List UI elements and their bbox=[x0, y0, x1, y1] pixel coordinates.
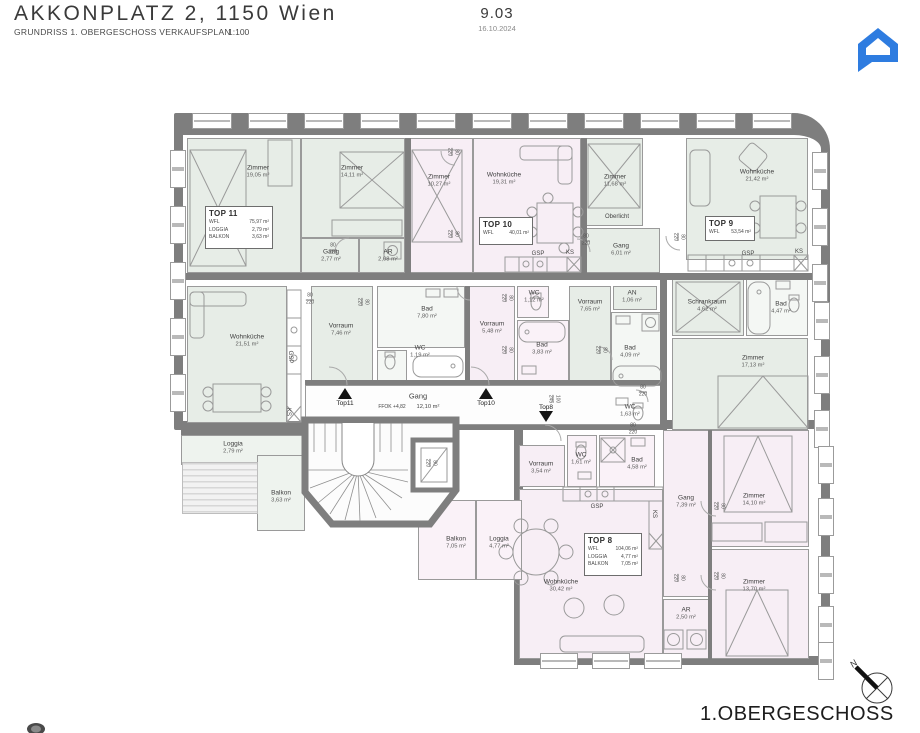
plan-annotation: KS bbox=[651, 510, 657, 518]
room-label: Zimmer14,10 m² bbox=[743, 493, 766, 508]
floor-label: 1.OBERGESCHOSS bbox=[700, 703, 880, 726]
unit-id: TOP 10 bbox=[483, 220, 529, 229]
door-dimension-label: 80220 bbox=[446, 230, 459, 238]
window bbox=[812, 264, 828, 302]
window bbox=[814, 302, 830, 340]
door-dimension-label: 80220 bbox=[306, 294, 314, 307]
wall bbox=[183, 273, 822, 280]
room-label: WC1,19 m² bbox=[410, 345, 430, 360]
plan-subtitle: GRUNDRISS 1. OBERGESCHOSS VERKAUFSPLAN bbox=[14, 27, 231, 37]
window bbox=[592, 653, 630, 669]
plan-annotation: GSP bbox=[742, 251, 755, 257]
room-label: AR2,08 m² bbox=[378, 249, 398, 264]
room-label: Loggia4,77 m² bbox=[489, 536, 509, 551]
room-label: WC1,61 m² bbox=[571, 452, 591, 467]
window bbox=[814, 356, 830, 394]
room bbox=[301, 138, 405, 238]
door-dimension-label: 80220 bbox=[582, 235, 590, 248]
window bbox=[170, 206, 186, 244]
unit-info-box: TOP 9WFL53,54 m² bbox=[705, 216, 755, 241]
wall bbox=[581, 138, 587, 273]
door-dimension-label: 100245 bbox=[547, 395, 560, 403]
plan-number: 9.03 bbox=[452, 5, 542, 22]
entrance-marker: Top11 bbox=[331, 388, 359, 407]
room-label: Zimmer14,11 m² bbox=[341, 165, 363, 180]
window bbox=[640, 113, 680, 129]
window bbox=[360, 113, 400, 129]
room bbox=[663, 430, 709, 597]
plan-annotation: GSP bbox=[287, 351, 293, 364]
wall bbox=[660, 280, 667, 430]
room-label: Zimmer19,05 m² bbox=[247, 165, 270, 180]
door-dimension-label: 80220 bbox=[639, 386, 647, 399]
entrance-marker: Top10 bbox=[472, 388, 500, 407]
room-label: Bad4,47 m² bbox=[771, 301, 791, 316]
plan-annotation: KS bbox=[285, 408, 291, 416]
plan-annotation: 12,10 m² bbox=[417, 404, 440, 410]
room-label: Bad4,58 m² bbox=[627, 457, 647, 472]
plan-annotation: KS bbox=[795, 249, 803, 255]
window bbox=[304, 113, 344, 129]
room-label: Loggia2,79 m² bbox=[223, 441, 243, 456]
plan-date: 16.10.2024 bbox=[452, 24, 542, 33]
door-dimension-label: 80220 bbox=[446, 148, 459, 156]
room-label: Vorraum7,65 m² bbox=[578, 299, 603, 314]
room bbox=[473, 138, 581, 273]
window bbox=[248, 113, 288, 129]
plan-annotation: Gang bbox=[409, 392, 427, 401]
room bbox=[686, 138, 808, 260]
window bbox=[644, 653, 682, 669]
room-label: Gang7,39 m² bbox=[676, 495, 696, 510]
door-dimension-label: 80220 bbox=[329, 244, 337, 257]
door-dimension-label: 80220 bbox=[594, 346, 607, 354]
room-label: Schrankraum4,62 m² bbox=[688, 299, 727, 314]
window bbox=[818, 446, 834, 484]
terrace-hatch bbox=[182, 462, 258, 514]
unit-id: TOP 11 bbox=[209, 209, 269, 218]
room-label: Bad7,80 m² bbox=[417, 306, 437, 321]
room-label: Balkon7,05 m² bbox=[446, 536, 466, 551]
window bbox=[540, 653, 578, 669]
floorplan-sheet: AKKONPLATZ 2, 1150 Wien GRUNDRISS 1. OBE… bbox=[0, 0, 920, 733]
window bbox=[752, 113, 792, 129]
wall bbox=[465, 286, 470, 383]
window bbox=[170, 374, 186, 412]
wall bbox=[405, 138, 411, 273]
room-label: Wohnküche21,42 m² bbox=[740, 169, 774, 184]
wall bbox=[708, 430, 712, 659]
plan-scale: 1:100 bbox=[228, 27, 249, 37]
wall bbox=[181, 423, 307, 435]
door-dimension-label: 80220 bbox=[500, 294, 513, 302]
window bbox=[170, 262, 186, 300]
room-label: AN1,06 m² bbox=[622, 290, 642, 305]
room-label: Bad3,83 m² bbox=[532, 342, 552, 357]
door-dimension-label: 80220 bbox=[712, 572, 725, 580]
door-dimension-label: 80220 bbox=[672, 574, 685, 582]
wall bbox=[305, 380, 661, 385]
unit-id: TOP 9 bbox=[709, 219, 751, 228]
unit-info-box: TOP 8WFL104,06 m²LOGGIA4,77 m²BALKON7,05… bbox=[584, 533, 642, 576]
window bbox=[812, 152, 828, 190]
window bbox=[170, 318, 186, 356]
room bbox=[672, 338, 808, 430]
page-title: AKKONPLATZ 2, 1150 Wien bbox=[14, 2, 337, 26]
window bbox=[416, 113, 456, 129]
window bbox=[814, 410, 830, 448]
window bbox=[818, 556, 834, 594]
plan-annotation: FFOK +4,82 bbox=[378, 404, 405, 410]
room bbox=[377, 350, 407, 383]
window bbox=[818, 498, 834, 536]
room bbox=[187, 286, 287, 423]
window bbox=[170, 150, 186, 188]
room-label: WC1,12 m² bbox=[524, 290, 544, 305]
unit-id: TOP 8 bbox=[588, 536, 638, 545]
room bbox=[711, 549, 809, 659]
svg-text:N: N bbox=[848, 657, 860, 669]
crest-logo bbox=[27, 723, 45, 733]
plan-annotation: Oberlicht bbox=[605, 214, 629, 220]
window bbox=[812, 208, 828, 246]
entrance-marker: Top8 bbox=[532, 403, 560, 422]
wall bbox=[305, 425, 661, 430]
room bbox=[711, 430, 809, 547]
window bbox=[818, 642, 834, 680]
room-label: Wohnküche21,51 m² bbox=[230, 334, 264, 349]
room-label: Gang6,01 m² bbox=[611, 243, 631, 258]
plan-annotation: KS bbox=[566, 250, 574, 256]
room-label: Zimmer11,68 m² bbox=[604, 174, 626, 189]
plan-annotation: GSP bbox=[591, 504, 604, 510]
room-label: Vorraum3,54 m² bbox=[529, 461, 554, 476]
door-dimension-label: 80220 bbox=[424, 459, 437, 467]
window bbox=[584, 113, 624, 129]
room-label: Zimmer13,70 m² bbox=[743, 579, 766, 594]
door-dimension-label: 80220 bbox=[712, 502, 725, 510]
room-label: Zimmer10,27 m² bbox=[428, 174, 451, 189]
door-dimension-label: 80220 bbox=[672, 233, 685, 241]
window bbox=[818, 606, 834, 644]
room-label: Bad4,09 m² bbox=[620, 345, 640, 360]
door-dimension-label: 80220 bbox=[500, 346, 513, 354]
room bbox=[409, 138, 473, 273]
window bbox=[528, 113, 568, 129]
room-label: Wohnküche19,31 m² bbox=[487, 172, 521, 187]
window bbox=[472, 113, 512, 129]
unit-info-box: TOP 10WFL40,01 m² bbox=[479, 217, 533, 245]
plan-annotation: GSP bbox=[532, 251, 545, 257]
door-dimension-label: 80220 bbox=[356, 298, 369, 306]
room-label: Balkon3,63 m² bbox=[271, 490, 291, 505]
room-label: Vorraum5,48 m² bbox=[480, 321, 505, 336]
room-label: Zimmer17,13 m² bbox=[742, 355, 765, 370]
window bbox=[696, 113, 736, 129]
brand-logo-icon bbox=[858, 28, 898, 72]
room-label: Vorraum7,46 m² bbox=[329, 323, 354, 338]
window bbox=[192, 113, 232, 129]
door-dimension-label: 80220 bbox=[629, 424, 637, 437]
room-label: WC1,63 m² bbox=[620, 404, 640, 419]
compass-icon: N bbox=[848, 657, 892, 703]
room-label: Wohnküche30,42 m² bbox=[544, 579, 578, 594]
room-label: AR2,50 m² bbox=[676, 607, 696, 622]
unit-info-box: TOP 11WFL75,97 m²LOGGIA2,79 m²BALKON3,63… bbox=[205, 206, 273, 249]
